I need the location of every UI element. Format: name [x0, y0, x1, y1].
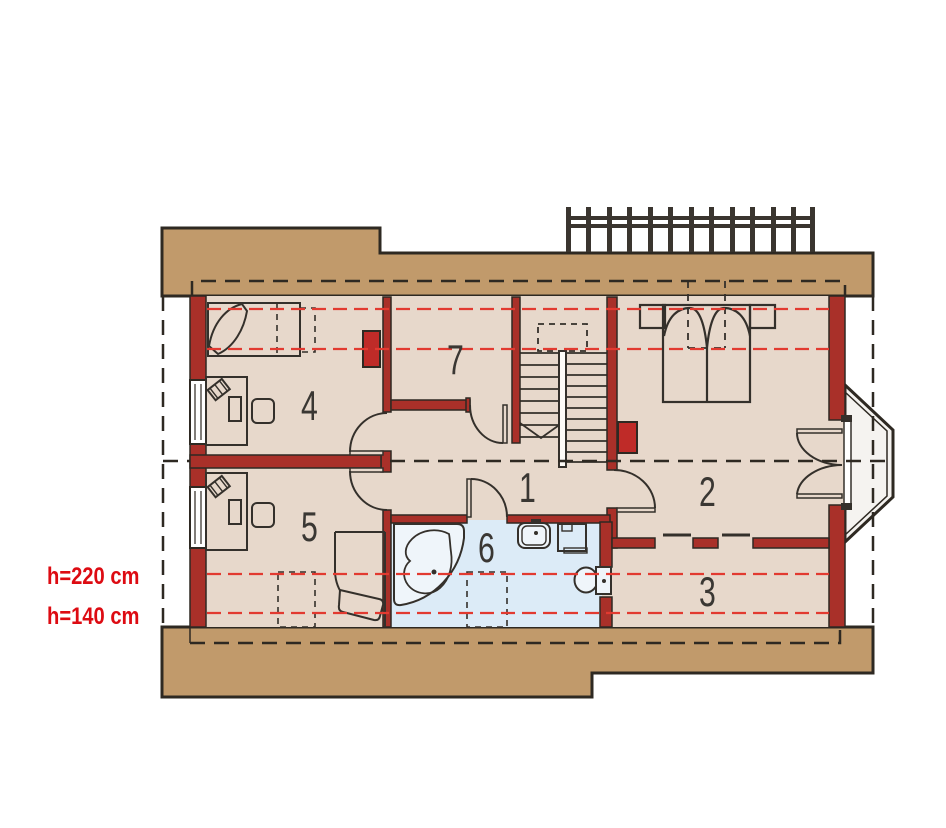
- bay-door-leaf-bottom: [797, 494, 842, 498]
- attic-floor-plan: 1 2 3 4 5 6 7 h=220 cm h=140 cm: [0, 0, 946, 828]
- washbasin: [518, 523, 550, 548]
- wall-right-lower: [829, 505, 845, 627]
- wall-right-upper: [829, 296, 845, 420]
- roof-band-top: [162, 228, 873, 296]
- room-label-4: 4: [301, 385, 317, 427]
- toilet-bowl: [575, 568, 598, 593]
- door-leaf-bathroom: [467, 479, 471, 517]
- height-annotation-220: h=220 cm: [47, 565, 139, 589]
- chimney-room2: [618, 422, 637, 453]
- wall-divider-4-5: [190, 455, 381, 468]
- floor-plan-drawing: [0, 0, 946, 828]
- balcony-railing-icon: [566, 207, 815, 252]
- window-room5: [190, 487, 206, 548]
- room-label-6: 6: [478, 527, 494, 569]
- wall-divider-2-3: [612, 538, 655, 548]
- bay-window: [845, 385, 893, 542]
- window-room4: [190, 380, 206, 444]
- room-label-1: 1: [519, 467, 535, 509]
- room-label-7: 7: [447, 339, 463, 381]
- room-label-5: 5: [301, 506, 317, 548]
- stair-handrail: [559, 351, 566, 467]
- room-label-2: 2: [699, 471, 715, 513]
- roof-band-bottom: [162, 627, 873, 697]
- room-label-3: 3: [699, 571, 715, 613]
- door-leaf-room5: [350, 468, 383, 472]
- door-leaf-room2: [617, 508, 655, 512]
- door-leaf-room4: [350, 451, 383, 455]
- bay-door-frame: [844, 420, 851, 505]
- door-leaf-room7: [503, 405, 507, 443]
- height-annotation-140: h=140 cm: [47, 605, 139, 629]
- bay-door-leaf-top: [797, 429, 842, 433]
